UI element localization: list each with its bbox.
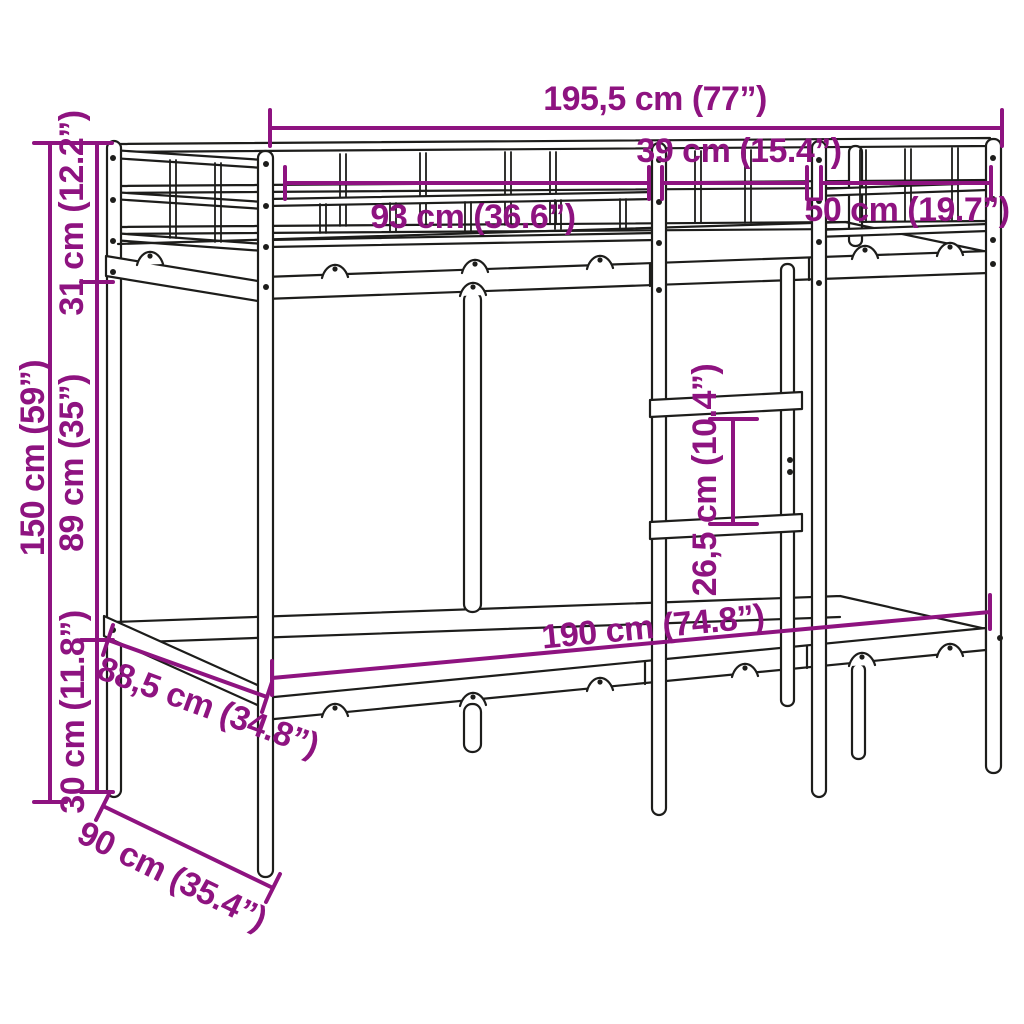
dimension-label-total-length: 195,5 cm (77”) [495, 82, 815, 116]
dimension-label-rung-spacing: 26,5 cm (10.4”) [688, 320, 722, 640]
ladder-right-stile [781, 264, 794, 706]
dimension-label-right-guardrail: 50 cm (19.7”) [747, 193, 1024, 227]
front-left-post [258, 151, 273, 877]
back-right-leg [852, 664, 865, 759]
upper-guardrail-left-end [112, 150, 264, 251]
ladder-rung [650, 392, 802, 417]
ladder [650, 143, 802, 815]
dimension-label-total-height: 150 cm (59”) [16, 298, 50, 618]
ladder-rung [650, 514, 802, 539]
dimension-label-left-guardrail: 93 cm (36.6”) [313, 200, 633, 234]
front-right-post [986, 139, 1001, 773]
dimension-label-ladder-opening: 39 cm (15.4”) [579, 134, 899, 168]
loft-bed-dimension-diagram: 195,5 cm (77”) 93 cm (36.6”) 39 cm (15.4… [0, 0, 1024, 1024]
center-support-post [460, 283, 486, 612]
